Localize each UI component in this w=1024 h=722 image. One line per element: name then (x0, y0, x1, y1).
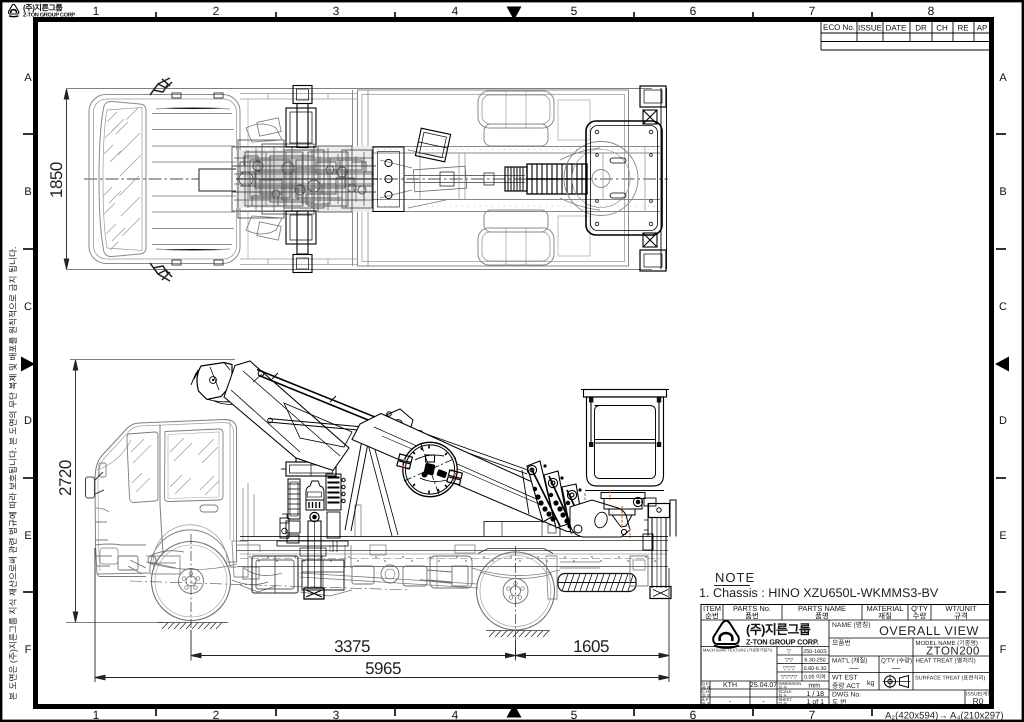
svg-text:6: 6 (690, 708, 697, 722)
svg-text:1850: 1850 (47, 162, 66, 198)
svg-text:5965: 5965 (365, 659, 401, 678)
svg-text:NOTE: NOTE (715, 570, 755, 585)
svg-text:B: B (24, 186, 31, 198)
svg-text:본 도면은 (주)지른그룹 지식 재산으로써 관련 법규에: 본 도면은 (주)지른그룹 지식 재산으로써 관련 법규에 따라 보호됩니다. … (8, 246, 18, 700)
svg-text:25.04.07: 25.04.07 (750, 682, 777, 689)
svg-text:품번: 품번 (745, 612, 759, 621)
svg-text:D: D (999, 415, 1007, 427)
svg-text:B: B (999, 186, 1006, 198)
svg-text:품명: 품명 (815, 612, 829, 621)
svg-text:Z-TON GROUP CORP.: Z-TON GROUP CORP. (746, 638, 819, 647)
svg-text:0.05 이하: 0.05 이하 (804, 674, 826, 681)
svg-text:WT EST: WT EST (832, 675, 858, 682)
svg-text:3: 3 (333, 4, 340, 18)
svg-text:2: 2 (213, 4, 220, 18)
svg-text:1 / 18: 1 / 18 (806, 690, 824, 698)
svg-text:2: 2 (213, 708, 220, 722)
svg-text:장 수: 장 수 (779, 701, 788, 706)
svg-text:0.80-6.30: 0.80-6.30 (804, 666, 827, 672)
svg-text:RE: RE (957, 24, 968, 33)
svg-text:1: 1 (93, 708, 100, 722)
svg-text:중량 ACT: 중량 ACT (832, 682, 860, 690)
svg-text:C: C (24, 301, 32, 313)
svg-text:3: 3 (333, 708, 340, 722)
svg-text:CH: CH (936, 24, 948, 33)
svg-text:재질: 재질 (878, 612, 892, 621)
svg-text:모품번: 모품번 (832, 639, 851, 647)
svg-text:OVERALL VIEW: OVERALL VIEW (879, 624, 979, 638)
svg-text:D: D (24, 415, 32, 427)
svg-text:MACH.SURF.TEXTURE (가공면거칠기): MACH.SURF.TEXTURE (가공면거칠기) (703, 648, 773, 653)
svg-text:▽▽▽▽: ▽▽▽▽ (781, 675, 798, 681)
svg-text:3375: 3375 (334, 637, 370, 656)
svg-text:7: 7 (809, 4, 816, 18)
svg-text:7: 7 (809, 708, 816, 722)
svg-text:1 of 1: 1 of 1 (806, 698, 824, 706)
svg-text:순번: 순번 (705, 612, 719, 621)
svg-text:SURFACE TREAT (표면처리): SURFACE TREAT (표면처리) (915, 675, 986, 682)
svg-text:ECO No.: ECO No. (823, 23, 855, 32)
svg-text:ZTON200: ZTON200 (926, 646, 980, 658)
svg-text:Z-TON GROUP CORP: Z-TON GROUP CORP (23, 13, 75, 19)
svg-text:▽▽: ▽▽ (785, 658, 794, 664)
svg-text:F: F (1000, 644, 1007, 656)
svg-text:도 번: 도 번 (832, 699, 846, 707)
svg-text:4: 4 (452, 708, 459, 722)
svg-text:A: A (999, 72, 1007, 84)
svg-text:E: E (24, 530, 31, 542)
svg-text:—: — (850, 663, 859, 673)
svg-text:5: 5 (571, 708, 578, 722)
svg-text:DATE: DATE (886, 24, 907, 33)
svg-text:DWG No.: DWG No. (832, 692, 861, 699)
svg-text:1. Chassis : HINO XZU650L-WKMM: 1. Chassis : HINO XZU650L-WKMMS3-BV (699, 586, 939, 600)
svg-text:수량: 수량 (913, 612, 927, 621)
svg-text:2720: 2720 (56, 460, 75, 496)
svg-text:E: E (999, 530, 1006, 542)
svg-text:—: — (892, 663, 901, 673)
svg-text:AP: AP (977, 24, 988, 33)
svg-text:KTH: KTH (723, 682, 737, 689)
svg-text:승 인: 승 인 (702, 701, 711, 706)
svg-text:HEAT TREAT (열처리): HEAT TREAT (열처리) (916, 657, 976, 665)
svg-text:C: C (999, 301, 1007, 313)
svg-text:A: A (24, 72, 32, 84)
svg-text:6.30-250: 6.30-250 (804, 658, 825, 664)
svg-text:6: 6 (690, 4, 697, 18)
svg-text:F: F (25, 644, 32, 656)
svg-text:1605: 1605 (573, 637, 609, 656)
svg-text:A₂(420x594)→ A₄(210x297): A₂(420x594)→ A₄(210x297) (885, 711, 1004, 722)
svg-text:5: 5 (571, 4, 578, 18)
svg-text:▽▽▽: ▽▽▽ (783, 666, 796, 672)
svg-text:kg: kg (867, 679, 875, 687)
svg-text:8: 8 (928, 4, 935, 18)
svg-text:1: 1 (93, 4, 100, 18)
svg-text:250-160S: 250-160S (803, 649, 827, 655)
svg-text:DR: DR (915, 24, 927, 33)
svg-text:(주)지른그룹: (주)지른그룹 (23, 4, 63, 13)
svg-text:NAME (명칭): NAME (명칭) (832, 621, 871, 629)
svg-text:규격: 규격 (954, 612, 968, 621)
svg-text:mm: mm (808, 683, 820, 690)
svg-text:ISSUE: ISSUE (858, 24, 882, 33)
svg-text:R0: R0 (973, 696, 984, 706)
svg-text:4: 4 (452, 4, 459, 18)
svg-text:(주)지른그룹: (주)지른그룹 (746, 622, 811, 637)
